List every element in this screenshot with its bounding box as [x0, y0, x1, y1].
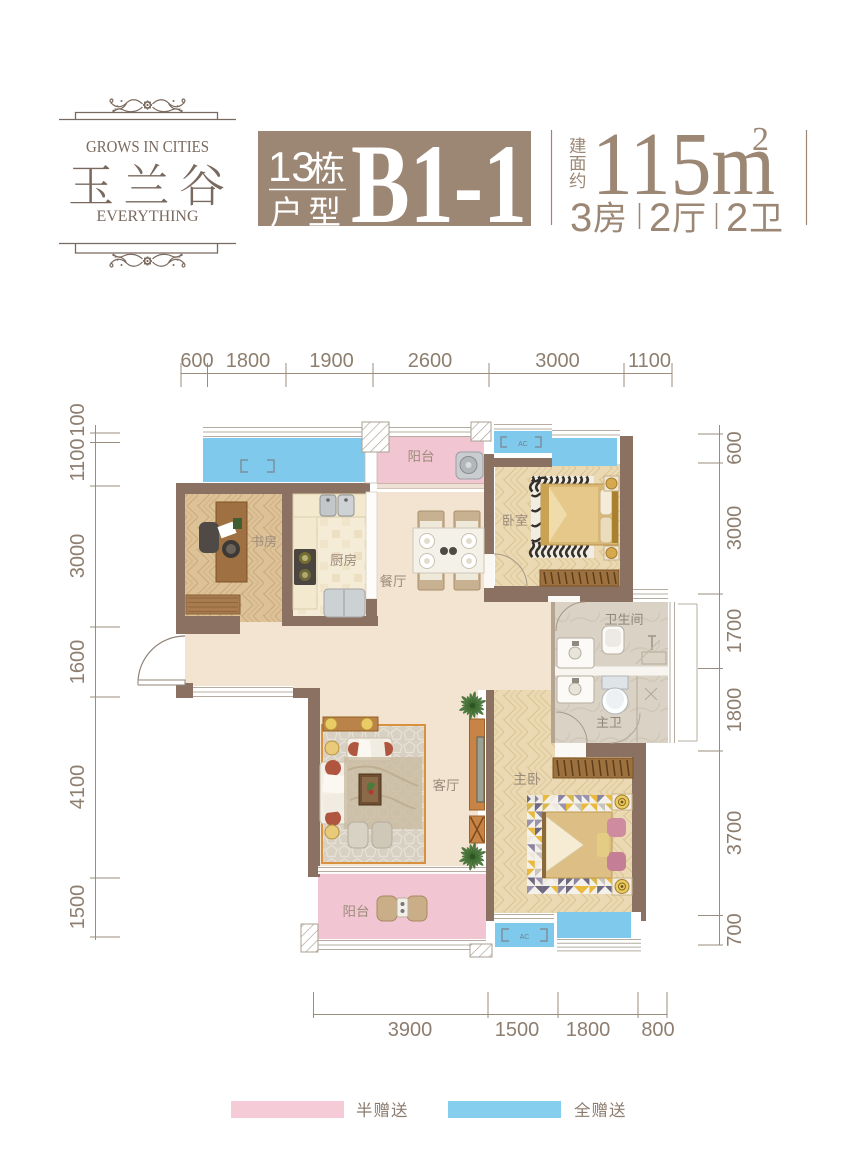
- svg-text:1500: 1500: [495, 1019, 540, 1041]
- svg-text:1800: 1800: [566, 1019, 611, 1041]
- svg-text:1600: 1600: [67, 640, 89, 685]
- svg-text:1800: 1800: [724, 688, 746, 733]
- svg-text:3700: 3700: [724, 811, 746, 856]
- svg-text:13: 13: [268, 143, 315, 190]
- svg-text:2: 2: [726, 196, 748, 240]
- svg-text:3900: 3900: [388, 1019, 433, 1041]
- svg-text:AC: AC: [520, 934, 530, 941]
- svg-text:EVERYTHING: EVERYTHING: [97, 208, 199, 225]
- svg-text:4100: 4100: [67, 765, 89, 810]
- svg-text:100: 100: [67, 403, 89, 436]
- svg-text:3: 3: [570, 196, 592, 240]
- svg-text:2: 2: [649, 196, 671, 240]
- svg-text:1100: 1100: [67, 438, 89, 481]
- svg-text:600: 600: [724, 431, 746, 464]
- svg-text:3000: 3000: [67, 534, 89, 579]
- svg-text:1100: 1100: [628, 350, 671, 372]
- svg-text:600: 600: [180, 350, 213, 372]
- svg-text:2600: 2600: [408, 350, 453, 372]
- svg-text:3000: 3000: [535, 350, 580, 372]
- svg-text:1800: 1800: [226, 350, 271, 372]
- svg-text:2: 2: [752, 121, 769, 158]
- svg-text:700: 700: [724, 913, 746, 946]
- svg-text:1700: 1700: [724, 609, 746, 654]
- svg-text:AC: AC: [518, 441, 528, 448]
- svg-text:1500: 1500: [67, 885, 89, 930]
- svg-text:GROWS IN CITIES: GROWS IN CITIES: [86, 137, 209, 156]
- svg-text:3000: 3000: [724, 506, 746, 551]
- svg-text:B1-1: B1-1: [351, 122, 527, 247]
- svg-text:800: 800: [641, 1019, 674, 1041]
- svg-text:1900: 1900: [309, 350, 354, 372]
